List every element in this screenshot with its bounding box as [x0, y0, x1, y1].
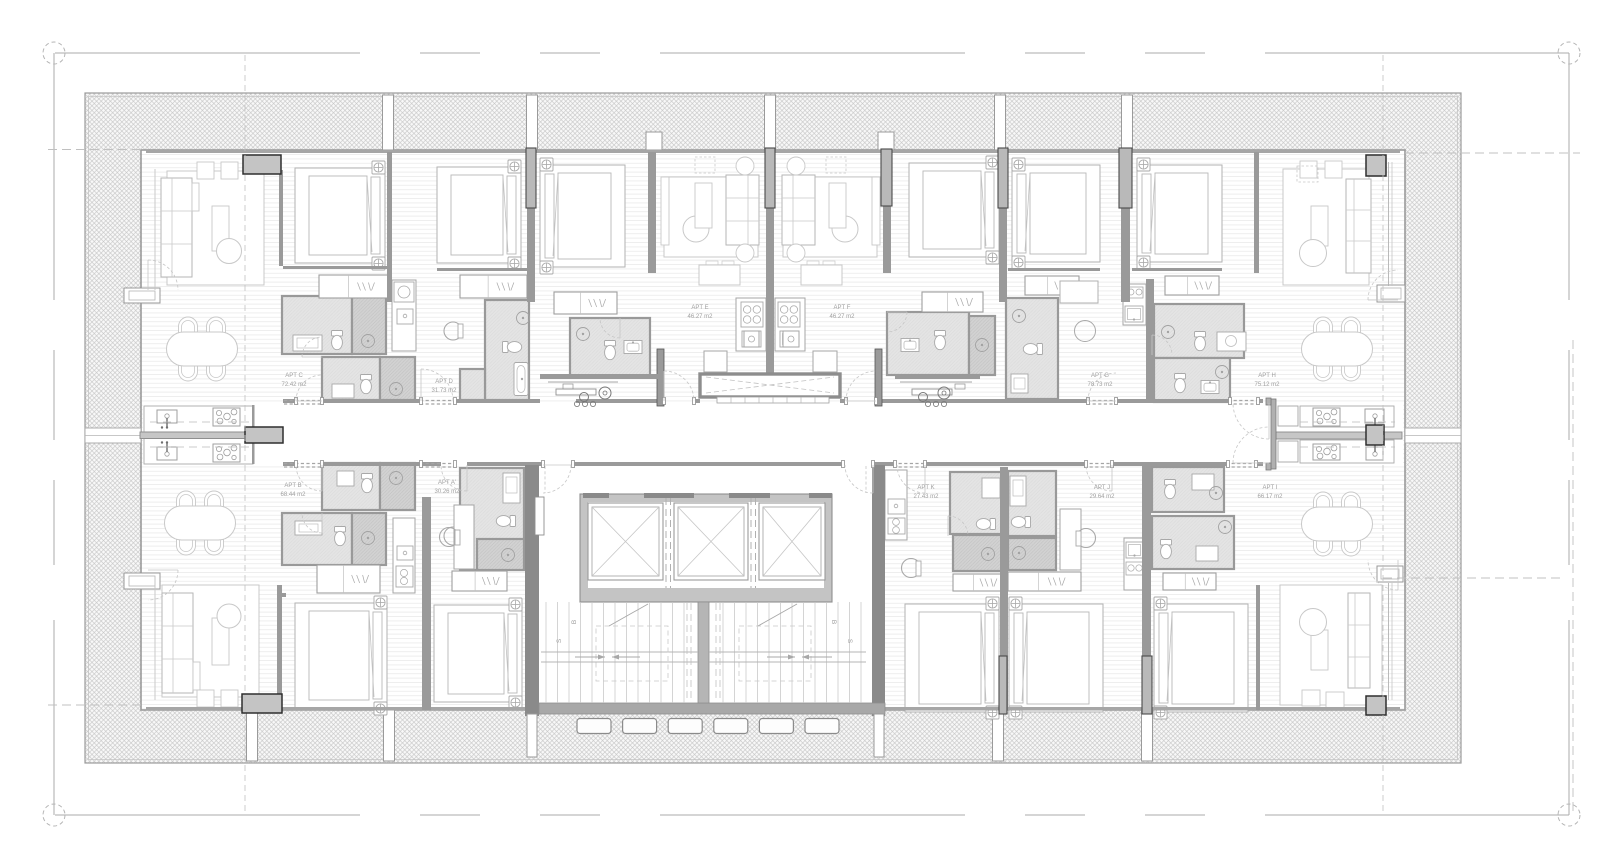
svg-text:APT G: APT G: [1091, 373, 1109, 379]
svg-text:B: B: [830, 620, 837, 624]
svg-text:APT H: APT H: [1258, 373, 1276, 379]
svg-text:APT K: APT K: [917, 485, 934, 491]
svg-text:B: B: [571, 620, 578, 624]
svg-text:29.64 m2: 29.64 m2: [1089, 494, 1115, 500]
svg-text:APT J: APT J: [1094, 485, 1110, 491]
svg-text:APT B: APT B: [284, 483, 301, 489]
svg-text:78.73 m2: 78.73 m2: [1087, 382, 1113, 388]
svg-text:72.42 m2: 72.42 m2: [281, 382, 307, 388]
svg-text:30.26 m2: 30.26 m2: [434, 489, 460, 495]
svg-text:46.27 m2: 46.27 m2: [829, 314, 855, 320]
svg-text:S: S: [556, 638, 563, 643]
svg-text:APT F: APT F: [834, 305, 851, 311]
svg-text:68.44 m2: 68.44 m2: [280, 492, 306, 498]
svg-text:APT E: APT E: [691, 305, 708, 311]
svg-text:66.17 m2: 66.17 m2: [1257, 494, 1283, 500]
svg-text:S: S: [846, 639, 853, 644]
svg-text:27.43 m2: 27.43 m2: [913, 494, 939, 500]
svg-text:APT D: APT D: [435, 379, 453, 385]
svg-text:46.27 m2: 46.27 m2: [687, 314, 713, 320]
svg-text:APT A': APT A': [438, 480, 456, 486]
svg-text:APT I: APT I: [1263, 485, 1278, 491]
svg-text:31.73 m2: 31.73 m2: [431, 388, 457, 394]
svg-text:75.12 m2: 75.12 m2: [1254, 382, 1280, 388]
svg-text:APT C: APT C: [285, 373, 303, 379]
